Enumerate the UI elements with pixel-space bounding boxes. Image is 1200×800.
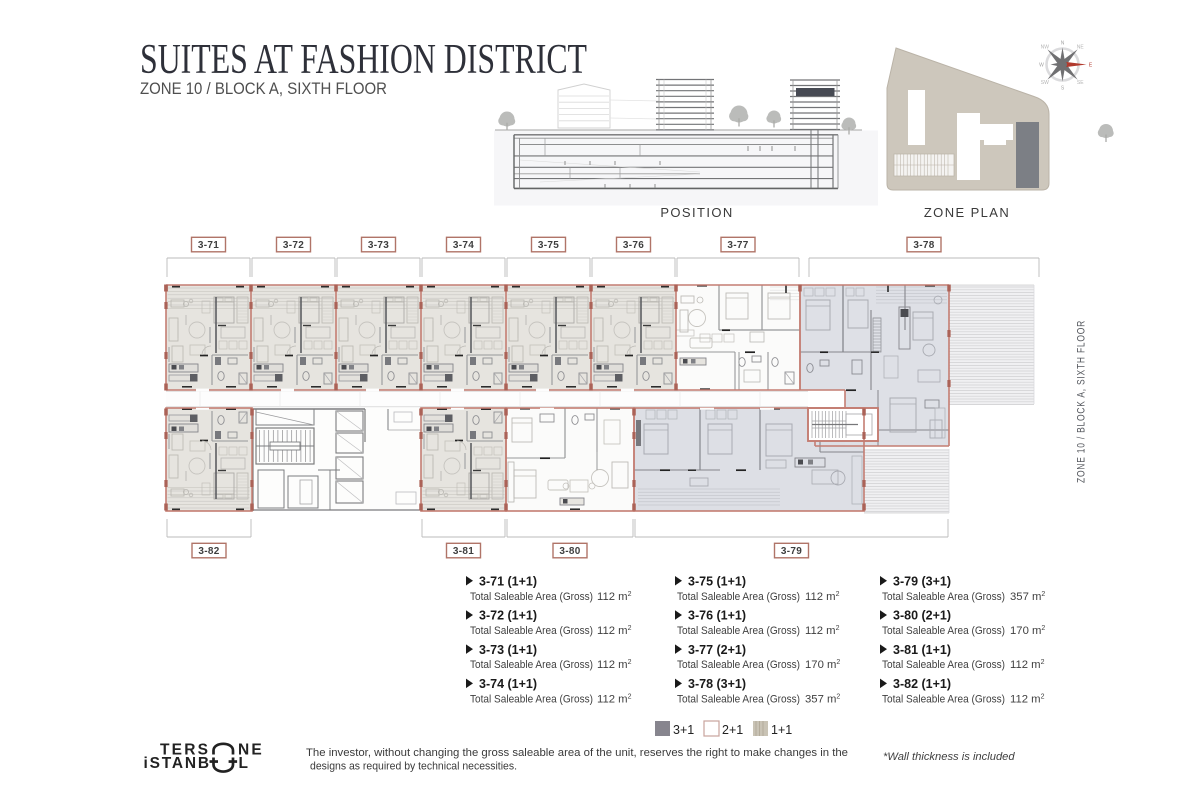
svg-text:iSTANB: iSTANB	[144, 755, 211, 772]
svg-text:SUITES AT FASHION DISTRICT: SUITES AT FASHION DISTRICT	[140, 37, 587, 83]
svg-text:3-75: 3-75	[538, 240, 559, 251]
svg-text:Total Saleable Area (Gross): Total Saleable Area (Gross)	[882, 693, 1005, 705]
svg-text:L: L	[239, 755, 250, 772]
svg-text:Total Saleable Area (Gross): Total Saleable Area (Gross)	[470, 659, 593, 671]
svg-text:POSITION: POSITION	[660, 205, 733, 220]
svg-text:W: W	[1039, 62, 1044, 68]
svg-text:3-71 (1+1): 3-71 (1+1)	[479, 575, 537, 589]
svg-text:designs as required by technic: designs as required by technical necessi…	[310, 761, 517, 773]
svg-text:3-77: 3-77	[727, 240, 748, 251]
svg-text:Total Saleable Area (Gross): Total Saleable Area (Gross)	[882, 591, 1005, 603]
svg-text:1+1: 1+1	[771, 723, 792, 737]
svg-text:ZONE 10 / BLOCK A, SIXTH FLOOR: ZONE 10 / BLOCK A, SIXTH FLOOR	[1076, 320, 1088, 483]
svg-text:3-81 (1+1): 3-81 (1+1)	[893, 643, 951, 657]
svg-text:3-79: 3-79	[781, 546, 802, 557]
svg-text:ZONE PLAN: ZONE PLAN	[924, 205, 1010, 220]
svg-text:Total Saleable Area (Gross): Total Saleable Area (Gross)	[470, 625, 593, 637]
svg-text:SE: SE	[1077, 80, 1084, 86]
svg-text:Total Saleable Area (Gross): Total Saleable Area (Gross)	[882, 625, 1005, 637]
svg-text:3-73 (1+1): 3-73 (1+1)	[479, 643, 537, 657]
svg-text:3-78 (3+1): 3-78 (3+1)	[688, 677, 746, 691]
svg-text:3-74 (1+1): 3-74 (1+1)	[479, 677, 537, 691]
svg-text:112 m2: 112 m2	[805, 625, 840, 637]
svg-text:3-74: 3-74	[453, 240, 474, 251]
svg-text:3-79 (3+1): 3-79 (3+1)	[893, 575, 951, 589]
svg-text:ZONE 10 / BLOCK A, SIXTH FLOOR: ZONE 10 / BLOCK A, SIXTH FLOOR	[140, 80, 387, 98]
svg-text:NE: NE	[1077, 45, 1085, 51]
svg-text:357 m2: 357 m2	[1010, 591, 1045, 603]
svg-text:3-82: 3-82	[198, 546, 219, 557]
svg-text:3-72 (1+1): 3-72 (1+1)	[479, 609, 537, 623]
svg-text:*Wall thickness is included: *Wall thickness is included	[883, 751, 1015, 763]
svg-text:357 m2: 357 m2	[805, 693, 840, 705]
svg-text:112 m2: 112 m2	[597, 591, 632, 603]
svg-text:112 m2: 112 m2	[805, 591, 840, 603]
svg-text:112 m2: 112 m2	[597, 693, 632, 705]
svg-text:3-80 (2+1): 3-80 (2+1)	[893, 609, 951, 623]
svg-text:3-75 (1+1): 3-75 (1+1)	[688, 575, 746, 589]
svg-text:3-78: 3-78	[913, 240, 934, 251]
svg-text:112 m2: 112 m2	[1010, 693, 1045, 705]
svg-text:112 m2: 112 m2	[597, 659, 632, 671]
svg-text:112 m2: 112 m2	[1010, 659, 1045, 671]
svg-text:Total Saleable Area (Gross): Total Saleable Area (Gross)	[470, 591, 593, 603]
svg-text:3-81: 3-81	[453, 546, 474, 557]
svg-text:Total Saleable Area (Gross): Total Saleable Area (Gross)	[677, 693, 800, 705]
svg-text:112 m2: 112 m2	[597, 625, 632, 637]
svg-text:3-76: 3-76	[623, 240, 644, 251]
svg-text:Total Saleable Area (Gross): Total Saleable Area (Gross)	[677, 625, 800, 637]
svg-text:N: N	[1061, 40, 1065, 46]
svg-text:3-73: 3-73	[368, 240, 389, 251]
svg-text:Total Saleable Area (Gross): Total Saleable Area (Gross)	[677, 659, 800, 671]
svg-text:3-82 (1+1): 3-82 (1+1)	[893, 677, 951, 691]
svg-text:NW: NW	[1041, 45, 1050, 51]
svg-text:3-72: 3-72	[283, 240, 304, 251]
svg-text:2+1: 2+1	[722, 723, 743, 737]
svg-text:3-77 (2+1): 3-77 (2+1)	[688, 643, 746, 657]
svg-text:The investor, without changing: The investor, without changing the gross…	[306, 747, 848, 759]
svg-text:3-80: 3-80	[559, 546, 580, 557]
svg-text:SW: SW	[1041, 80, 1049, 86]
svg-text:170 m2: 170 m2	[1010, 625, 1045, 637]
svg-text:Total Saleable Area (Gross): Total Saleable Area (Gross)	[882, 659, 1005, 671]
svg-text:170 m2: 170 m2	[805, 659, 840, 671]
svg-text:3-71: 3-71	[198, 240, 219, 251]
svg-text:3+1: 3+1	[673, 723, 694, 737]
svg-text:Total Saleable Area (Gross): Total Saleable Area (Gross)	[470, 693, 593, 705]
svg-text:3-76 (1+1): 3-76 (1+1)	[688, 609, 746, 623]
svg-text:Total Saleable Area (Gross): Total Saleable Area (Gross)	[677, 591, 800, 603]
